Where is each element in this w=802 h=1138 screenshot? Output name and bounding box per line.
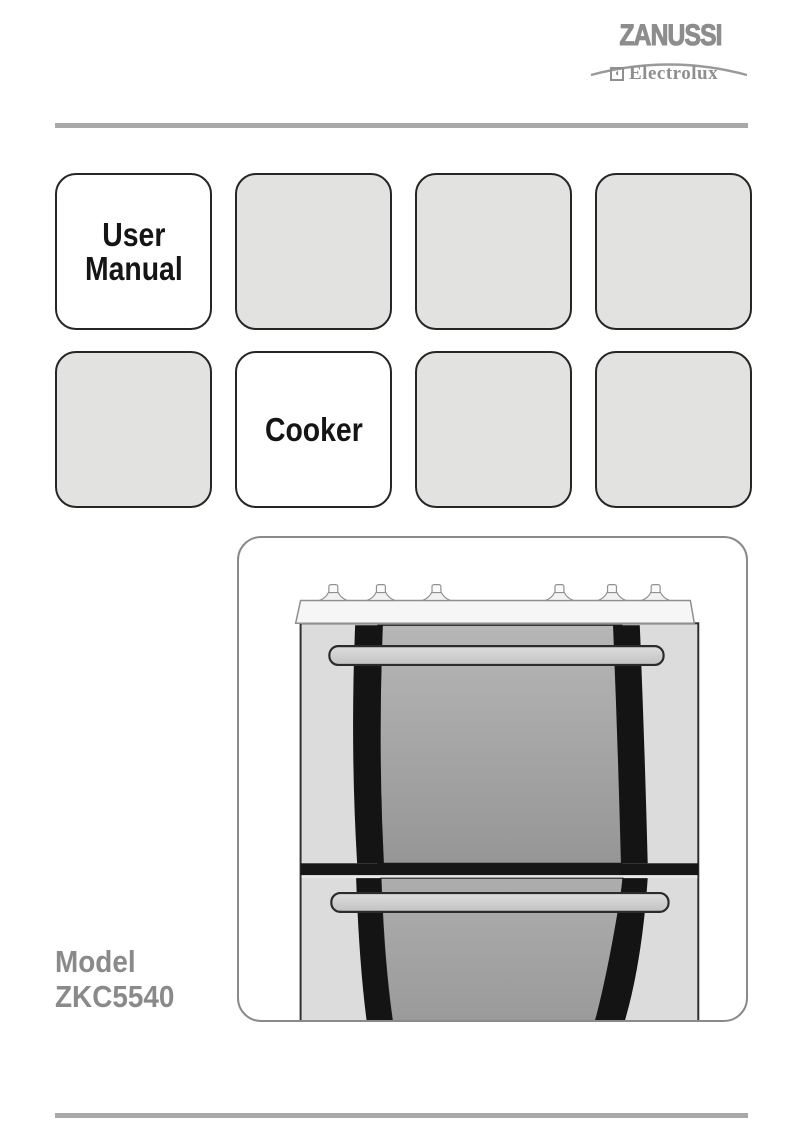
bottom-divider-rule [55,1113,748,1118]
model-block: Model ZKC5540 [55,944,174,1014]
cooker-panel [237,536,748,1022]
control-knob-1 [319,585,347,601]
model-label: Model [55,944,174,979]
electrolux-logo: ◖ Electrolux [610,64,730,84]
tile-blank-4 [55,351,212,508]
control-knob-6 [642,585,670,601]
oven-divider [301,863,699,875]
hob-knobs [319,585,669,601]
electrolux-wordmark: Electrolux [629,63,718,85]
control-knob-2 [367,585,395,601]
oven-door-upper [329,625,663,863]
control-knob-5 [598,585,626,601]
tile-grid: User Manual Cooker [55,173,752,508]
tile-blank-5 [415,351,572,508]
tile-blank-3 [595,173,752,330]
top-divider-rule [55,123,748,128]
model-number: ZKC5540 [55,979,174,1014]
tile-blank-2 [415,173,572,330]
tile-user-manual-label: User Manual [85,218,183,286]
tile-user-manual: User Manual [55,173,212,330]
control-knob-3 [423,585,451,601]
control-knob-4 [546,585,574,601]
cooker-illustration [239,538,746,1020]
manual-cover-page: ZANUSSI ◖ Electrolux User Manual Cooker [0,0,802,1138]
door-handle-lower [331,893,668,912]
tile-blank-6 [595,351,752,508]
door-handle-upper [329,646,663,665]
hob-strip [296,600,695,623]
oven-door-lower [331,878,668,1020]
tile-cooker-label: Cooker [265,413,363,447]
zanussi-logo: ZANUSSI [620,19,722,53]
electrolux-symbol-icon: ◖ [610,67,624,81]
tile-blank-1 [235,173,392,330]
tile-cooker: Cooker [235,351,392,508]
